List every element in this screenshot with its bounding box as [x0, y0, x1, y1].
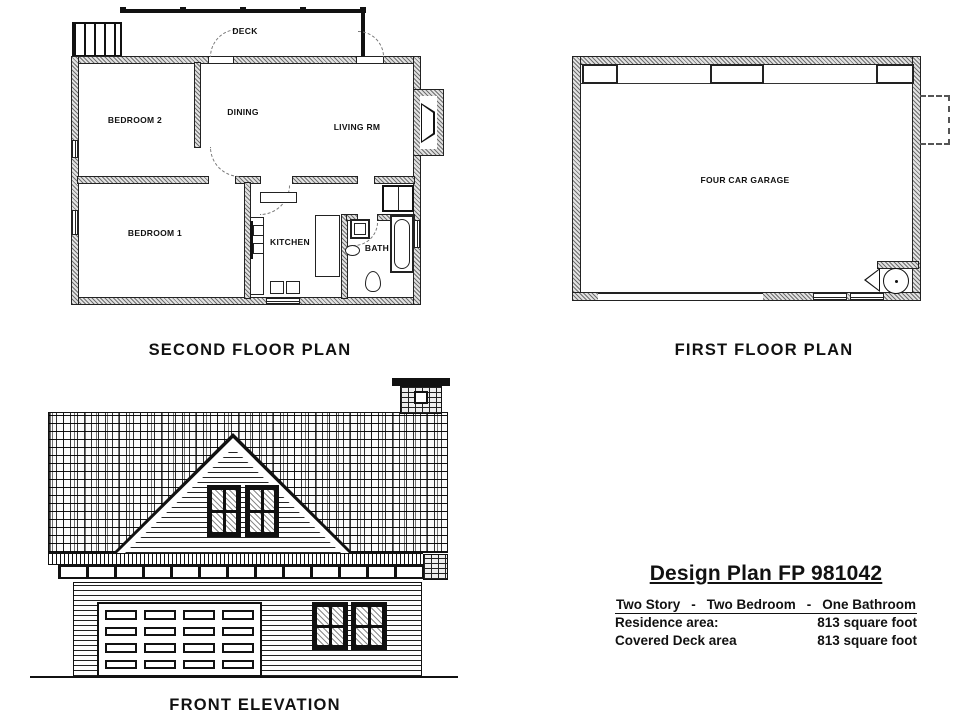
window-marker	[266, 298, 300, 304]
room-label-garage: FOUR CAR GARAGE	[630, 175, 860, 185]
gable-window	[207, 485, 241, 537]
wall-segment	[573, 57, 580, 300]
spec-separator: -	[691, 597, 696, 612]
gable-window	[245, 485, 279, 537]
title-block: Design Plan FP 981042 Two Story - Two Be…	[615, 562, 917, 649]
deck-post	[300, 7, 306, 13]
area-row-label: Covered Deck area	[615, 632, 737, 650]
window-pane	[332, 607, 344, 625]
dashed-projection	[920, 95, 950, 145]
wall-segment	[878, 262, 918, 268]
window-pane	[332, 628, 344, 646]
deck-post	[360, 7, 366, 13]
second-floor-plan: DECK	[60, 5, 465, 315]
garage-door-panel	[105, 660, 137, 670]
wall-segment	[342, 215, 347, 298]
window-pane	[356, 607, 368, 625]
kitchen-sink	[286, 281, 300, 294]
elevation-window	[312, 602, 348, 650]
window-pane	[264, 513, 275, 533]
wall-segment	[72, 298, 420, 304]
spec-item: One Bathroom	[822, 597, 916, 612]
room-label-bath: BATH	[355, 243, 399, 253]
garage-door-panel	[183, 627, 215, 637]
room-label-living: LIVING RM	[327, 122, 387, 132]
window-pane	[371, 607, 383, 625]
area-row-label: Residence area:	[615, 614, 719, 632]
room-label-bedroom1: BEDROOM 1	[115, 228, 195, 238]
deck-post	[240, 7, 246, 13]
design-plan-title: Design Plan FP 981042	[615, 562, 917, 586]
water-heater-door-inner	[866, 270, 879, 290]
garage-door-panel	[105, 627, 137, 637]
pier	[582, 64, 618, 84]
caption-front-elevation: FRONT ELEVATION	[105, 696, 405, 715]
door-arc	[210, 147, 240, 177]
door-arc	[358, 31, 384, 57]
window-pane	[250, 513, 261, 533]
closet-shelf-line	[398, 187, 399, 210]
window-pane	[356, 628, 368, 646]
window-pane	[371, 628, 383, 646]
deck-stairs	[72, 22, 122, 57]
water-heater-dot	[895, 280, 898, 283]
pier	[710, 64, 764, 84]
spec-item: Two Bedroom	[707, 597, 796, 612]
door-opening	[208, 57, 234, 63]
ground-line	[30, 676, 458, 678]
front-elevation	[30, 378, 465, 690]
wall-segment	[78, 177, 208, 183]
garage-door-panel	[183, 660, 215, 670]
window-pane	[250, 490, 261, 510]
window-pane	[212, 490, 223, 510]
garage-door-panel	[144, 643, 176, 653]
garage-door-panel	[183, 610, 215, 620]
window-pane	[226, 490, 237, 510]
wall-segment	[293, 177, 357, 183]
kitchen-sink	[270, 281, 284, 294]
area-row-value: 813 square foot	[817, 614, 917, 632]
deck-rail-band	[58, 565, 423, 579]
deck-post	[120, 7, 126, 13]
garage-door-panel	[222, 627, 254, 637]
range-burner	[253, 225, 264, 236]
window-pane	[264, 490, 275, 510]
caption-second-floor: SECOND FLOOR PLAN	[100, 341, 400, 360]
range-strip	[250, 221, 253, 259]
garage-door-panel	[222, 660, 254, 670]
garage-door	[97, 602, 262, 677]
room-label-bedroom2: BEDROOM 2	[95, 115, 175, 125]
kitchen-upper-counter	[260, 192, 297, 203]
window-pane	[226, 513, 237, 533]
garage-door-panel	[222, 610, 254, 620]
room-label-deck: DECK	[205, 26, 285, 36]
garage-door-panel	[105, 610, 137, 620]
garage-door-panel	[144, 660, 176, 670]
eave-fascia	[48, 553, 423, 565]
spec-item: Two Story	[616, 597, 680, 612]
area-row-value: 813 square foot	[817, 632, 917, 650]
wall-segment	[195, 63, 200, 147]
garage-door-panel	[183, 643, 215, 653]
wall-segment	[375, 177, 414, 183]
window-pane	[212, 513, 223, 533]
drawing-sheet: DECK	[0, 0, 980, 720]
door-opening	[356, 57, 384, 63]
window-marker	[72, 210, 78, 235]
room-label-dining: DINING	[213, 107, 273, 117]
window-marker	[813, 293, 847, 300]
first-floor-plan: FOUR CAR GARAGE	[570, 50, 970, 310]
area-row: Covered Deck area 813 square foot	[615, 632, 917, 650]
room-label-kitchen: KITCHEN	[260, 237, 320, 247]
deck-post	[180, 7, 186, 13]
garage-door-panel	[105, 643, 137, 653]
garage-door-opening	[598, 293, 763, 300]
elevation-window	[351, 602, 387, 650]
spec-line: Two Story - Two Bedroom - One Bathroom	[615, 597, 917, 614]
shower-fixture-inner	[354, 223, 366, 235]
chimney-base	[423, 554, 448, 580]
window-pane	[317, 628, 329, 646]
chimney-cap	[392, 378, 450, 386]
window-marker	[414, 220, 420, 248]
garage-door-panel	[222, 643, 254, 653]
window-marker	[850, 293, 884, 300]
garage-door-panel	[144, 627, 176, 637]
pier	[876, 64, 914, 84]
wall-segment	[573, 57, 920, 64]
window-pane	[317, 607, 329, 625]
area-row: Residence area: 813 square foot	[615, 614, 917, 632]
caption-first-floor: FIRST FLOOR PLAN	[614, 341, 914, 360]
toilet	[365, 271, 381, 292]
chimney-flue	[414, 391, 428, 404]
window-marker	[72, 140, 78, 158]
garage-door-panel	[144, 610, 176, 620]
spec-separator: -	[807, 597, 812, 612]
